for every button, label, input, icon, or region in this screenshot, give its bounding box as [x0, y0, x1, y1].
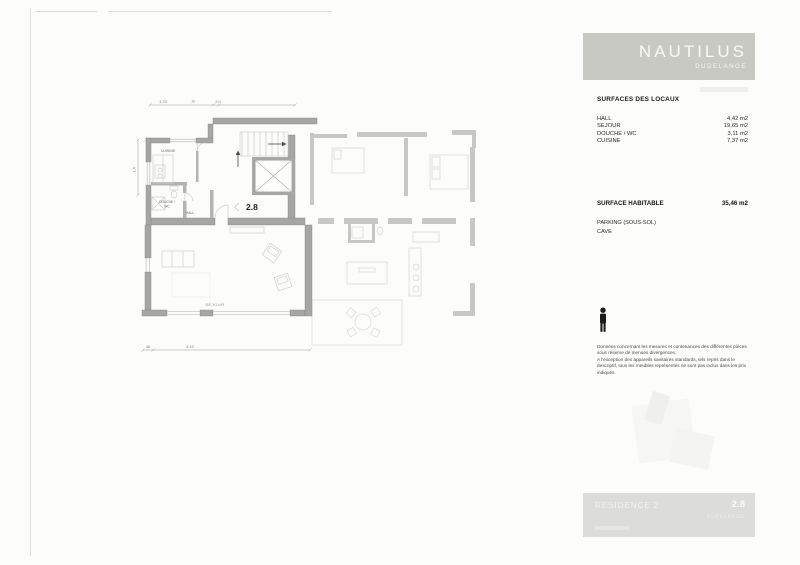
- brand-small-mark: [700, 87, 748, 92]
- surface-value: 4,42 m2: [727, 116, 748, 123]
- surface-label: DOUCHE / WC: [597, 131, 637, 138]
- surface-habitable-label: SURFACE HABITABLE: [597, 200, 664, 207]
- dim-label: 4,10: [186, 344, 195, 349]
- footer-residence: RESIDENCE 2: [595, 501, 659, 510]
- footer-unit-number: 2.8: [732, 499, 745, 510]
- floorplan-datasheet: NAUTILUS DUDELANGE SURFACES DES LOCAUX H…: [0, 0, 800, 565]
- room-label-shower: DOUCHE /: [159, 200, 175, 204]
- surface-value: 7,37 m2: [727, 138, 748, 145]
- scan-watermark: [669, 428, 715, 470]
- surface-habitable-row: SURFACE HABITABLE 35,46 m2: [597, 200, 748, 207]
- surfaces-rows: HALL 4,42 m2 SEJOUR 19,65 m2 DOUCHE / WC…: [597, 116, 748, 145]
- room-label-hall: HALL: [186, 211, 195, 215]
- unit-walls: [142, 118, 317, 316]
- footer-titleblock: RESIDENCE 2 2.8 DUDELANGE: [583, 493, 755, 537]
- footer-city: DUDELANGE: [707, 514, 745, 520]
- person-icon: [597, 307, 609, 333]
- dim-label: 1,4: [132, 166, 137, 172]
- floor-plan: 1,70 10 2,0 1,4 40 4,10 CUISINE DOUCHE /…: [120, 85, 590, 375]
- scan-top-line: [108, 11, 332, 12]
- annexes: PARKING (SOUS-SOL) CAVE: [597, 219, 748, 236]
- disclaimer-line: descriptif, tous les meubles représentés…: [597, 363, 759, 369]
- surface-habitable-value: 35,46 m2: [722, 200, 748, 207]
- scan-top-line: [35, 11, 97, 12]
- dim-label: 1,70: [159, 99, 168, 104]
- parking-label: PARKING (SOUS-SOL): [597, 219, 748, 228]
- dim-label: 10: [191, 100, 195, 104]
- disclaimer-line: indiqués.: [597, 370, 759, 376]
- surface-row: DOUCHE / WC 3,11 m2: [597, 131, 748, 138]
- surface-label: CUISINE: [597, 138, 621, 145]
- brand-title: NAUTILUS: [639, 42, 747, 62]
- surface-value: 3,11 m2: [727, 131, 748, 138]
- up-arrow-head: [236, 151, 240, 156]
- dim-label: 40: [146, 344, 151, 349]
- surfaces-heading: SURFACES DES LOCAUX: [597, 96, 748, 103]
- surface-label: SEJOUR: [597, 123, 621, 130]
- footer-small-text: [595, 526, 629, 530]
- neighbor-walls: [310, 130, 476, 316]
- room-label-kitchen: CUISINE: [161, 149, 176, 153]
- unit-number-label: 2.8: [246, 202, 258, 212]
- terrace: [312, 300, 402, 345]
- surface-row: SEJOUR 19,65 m2: [597, 123, 748, 130]
- room-label-shower: WC: [164, 205, 170, 209]
- dim-label: 2,0: [215, 99, 221, 104]
- surfaces-panel: SURFACES DES LOCAUX HALL 4,42 m2 SEJOUR …: [597, 96, 748, 145]
- surface-label: HALL: [597, 116, 612, 123]
- interior-walls: [151, 151, 214, 218]
- brand-subtitle: DUDELANGE: [695, 64, 747, 70]
- unit-chevron-icon: [235, 203, 240, 211]
- cave-label: CAVE: [597, 228, 748, 237]
- brand-header: NAUTILUS DUDELANGE: [583, 33, 755, 80]
- door-swings: [185, 143, 228, 218]
- surface-row: HALL 4,42 m2: [597, 116, 748, 123]
- stair-core: [236, 132, 293, 193]
- surface-value: 19,65 m2: [724, 123, 748, 130]
- room-label-living: SEJOUR: [205, 302, 224, 307]
- surface-row: CUISINE 7,37 m2: [597, 138, 748, 145]
- scan-edge-line: [30, 8, 31, 556]
- disclaimer-text: Données concernant les mesures et conten…: [597, 344, 759, 376]
